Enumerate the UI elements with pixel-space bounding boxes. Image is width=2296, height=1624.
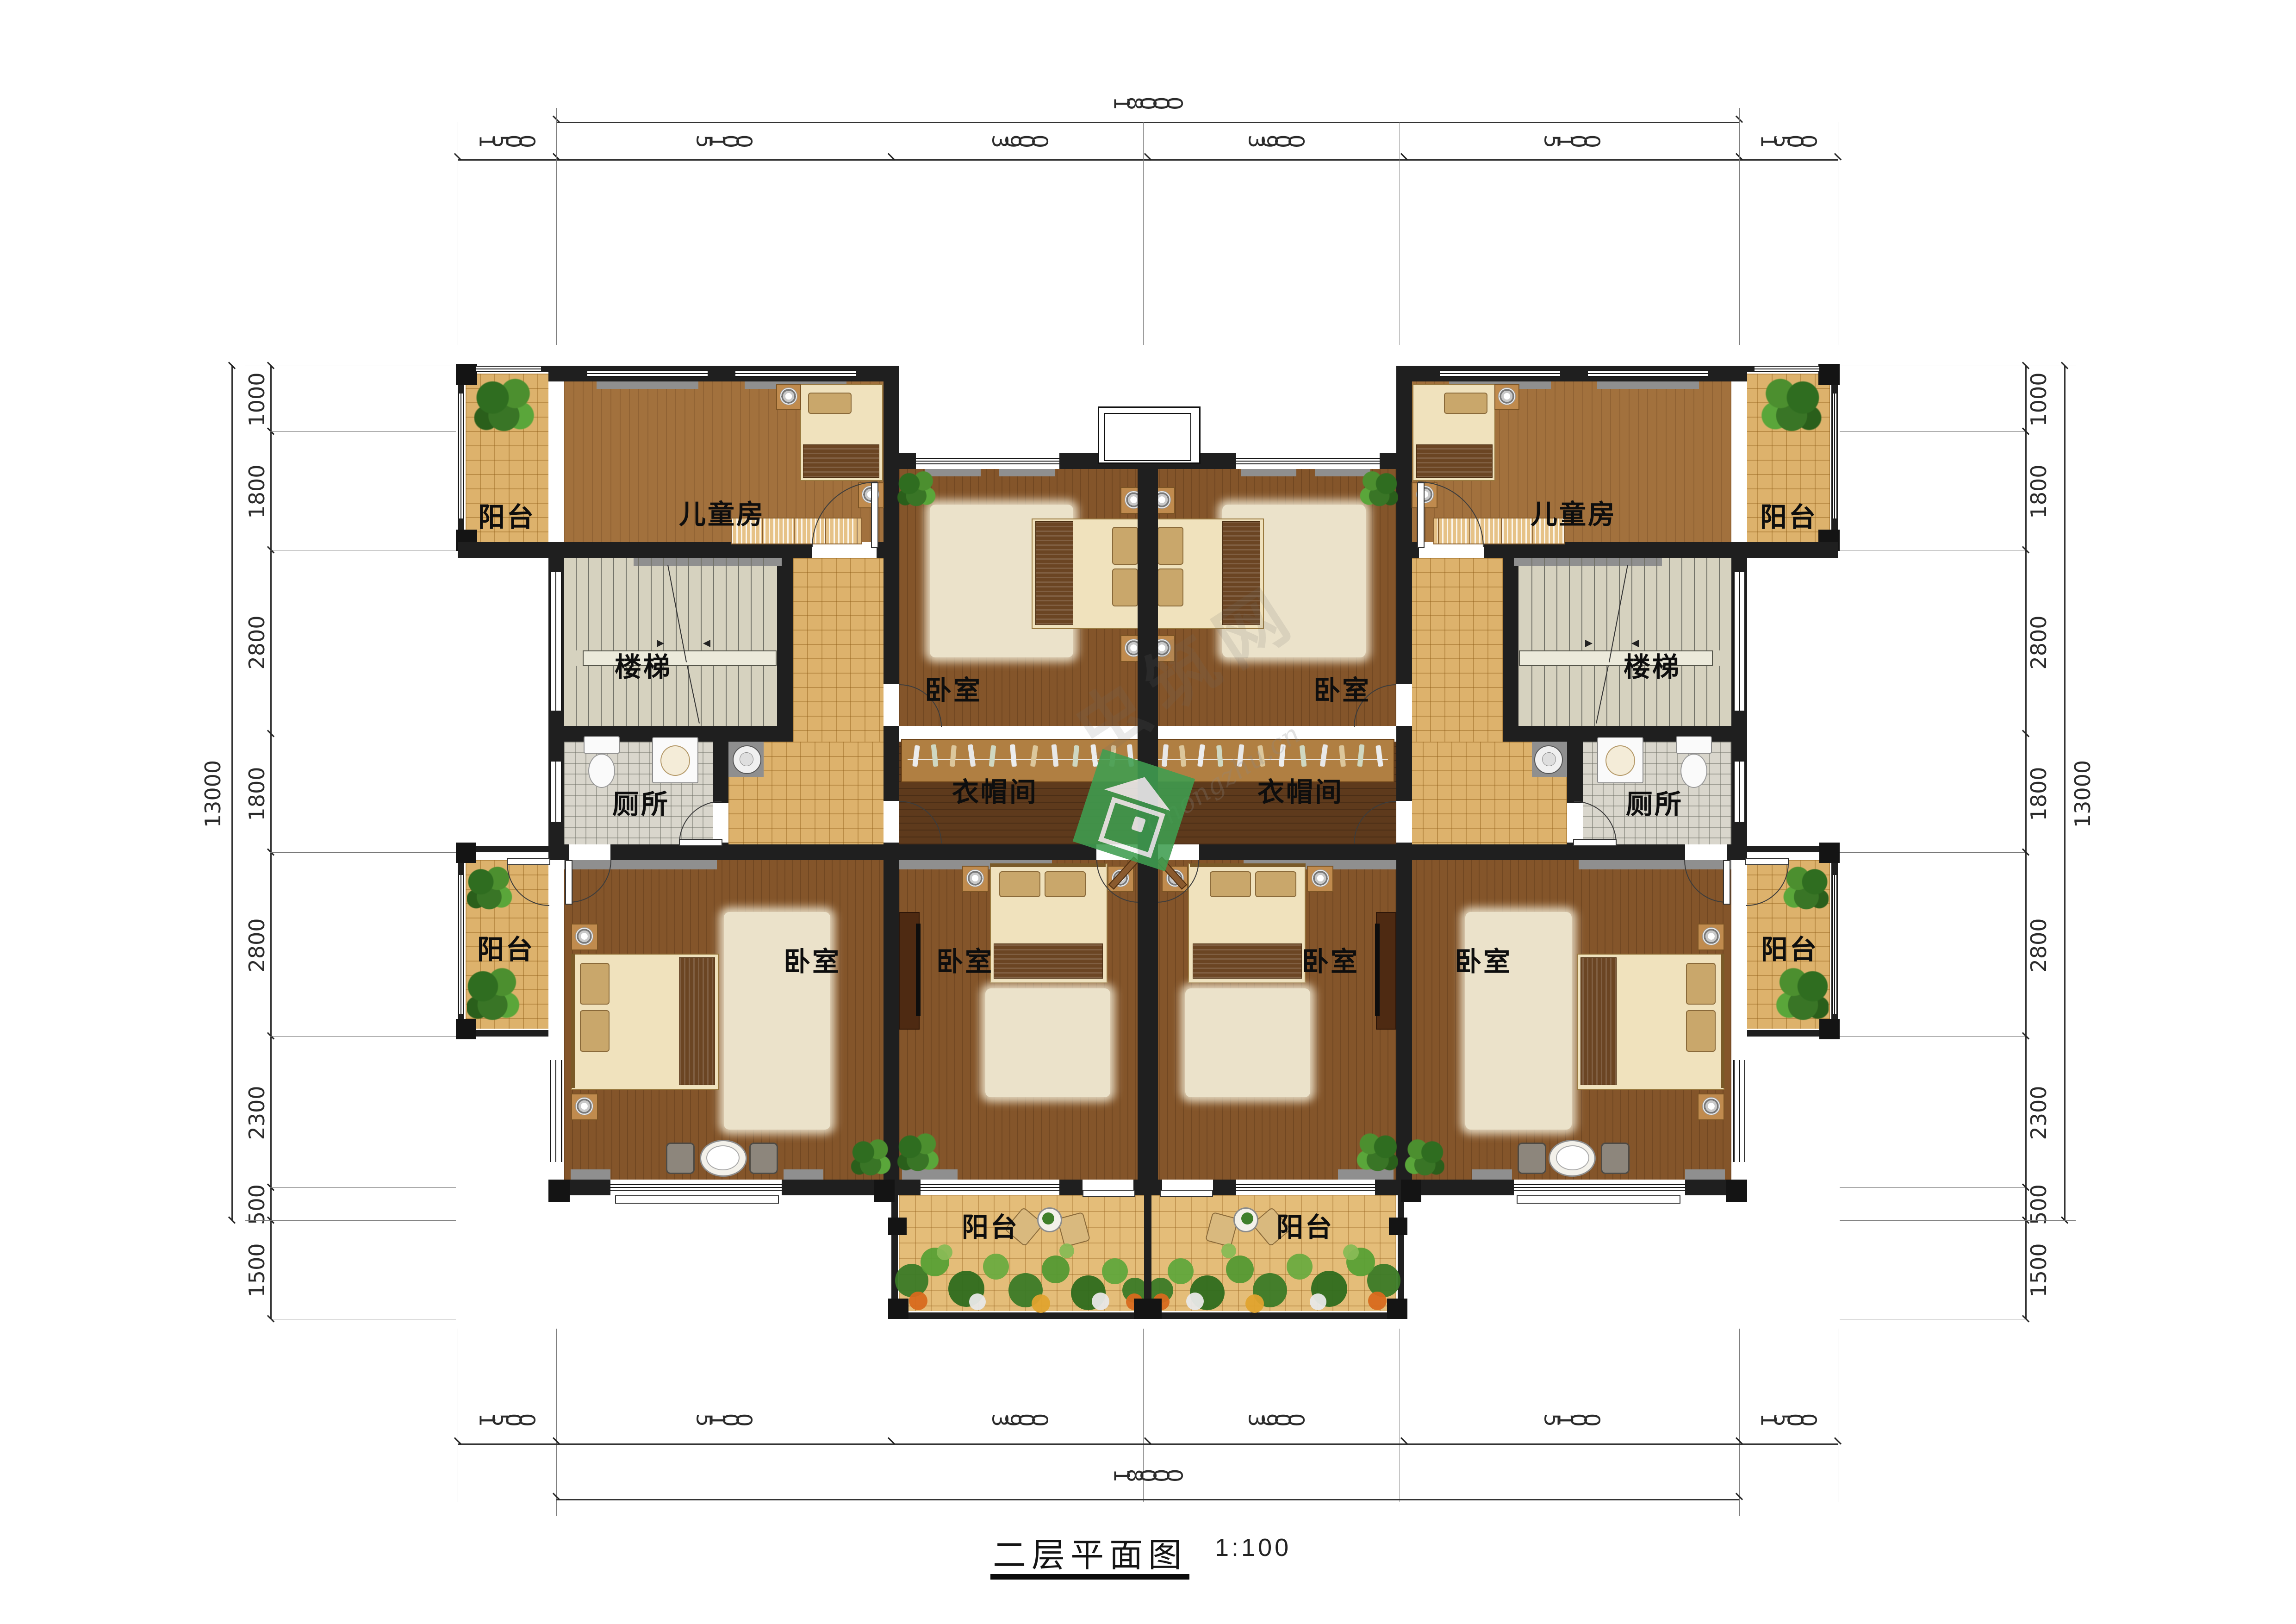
room-label-cloakroom-left: 衣帽间 (935, 770, 1055, 809)
window-sill (1597, 381, 1699, 389)
wall (1059, 1180, 1083, 1195)
wall (1213, 1180, 1236, 1195)
pillow (1112, 568, 1138, 606)
window (550, 572, 562, 711)
room-label-bedroom-top-left: 卧室 (893, 668, 1014, 707)
dim-left-seg-6: 2300 (244, 1067, 269, 1159)
dim-top-seg-2: 5100 (687, 129, 761, 154)
wall (610, 844, 1096, 860)
pillow (1112, 527, 1138, 565)
ext-line (1739, 108, 1740, 345)
garden-bush (1102, 1258, 1128, 1284)
window (550, 1060, 562, 1162)
dim-line (231, 366, 233, 1220)
wall (1727, 844, 1747, 860)
dim-left-seg-1: 1000 (244, 353, 269, 446)
lamp (780, 387, 797, 405)
room-label-cloakroom-right: 衣帽间 (1240, 770, 1361, 809)
dim-bottom-seg-3: 3900 (983, 1407, 1057, 1432)
window (1440, 370, 1560, 377)
wall (1380, 453, 1412, 469)
drawing-title: 二层平面图 (993, 1528, 1187, 1576)
table-top (1556, 1145, 1589, 1170)
plant (467, 965, 520, 1025)
wall (884, 366, 899, 684)
door-leaf (1723, 860, 1730, 905)
window-bay (1517, 1195, 1680, 1204)
garden-flower (1310, 1293, 1326, 1310)
plant (1775, 965, 1829, 1025)
ext-line (556, 108, 557, 345)
bay-window-inner (1104, 413, 1191, 461)
title-underline (990, 1574, 1189, 1580)
door-threshold (1160, 1190, 1213, 1197)
sink (1605, 745, 1635, 776)
dim-line (270, 366, 272, 1319)
wall (1396, 726, 1412, 801)
window (1755, 366, 1819, 372)
dim-bottom-seg-2: 5100 (687, 1407, 761, 1432)
wall (1567, 734, 1583, 803)
room-label-stairs-left: 楼梯 (583, 645, 703, 684)
garden-bush (1287, 1254, 1313, 1280)
dim-bottom-seg-6: 1500 (1751, 1407, 1825, 1432)
window-sill (571, 1169, 610, 1180)
garden-bush (983, 1254, 1009, 1280)
blanket (803, 444, 879, 478)
dim-bottom-overall: 18000 (1092, 1463, 1203, 1488)
window (735, 370, 856, 377)
wall (1375, 1180, 1404, 1195)
ext-line (458, 122, 458, 345)
room-label-balcony-top-left: 阳台 (447, 495, 567, 534)
door-leaf (679, 839, 722, 846)
window (1733, 762, 1745, 822)
door-leaf (565, 860, 572, 905)
dim-left-overall: 13000 (200, 748, 225, 840)
dim-top-seg-5: 5100 (1535, 129, 1609, 154)
pillow (1045, 871, 1086, 897)
lamp (575, 927, 593, 945)
room-label-bedroom-bottom-right: 卧室 (1423, 940, 1543, 979)
room-label-bedroom-bottom-center-right: 卧室 (1270, 940, 1391, 979)
window (916, 458, 1059, 464)
door-leaf (1573, 839, 1617, 846)
garden-flower (1032, 1294, 1050, 1313)
window-sill (1241, 469, 1296, 476)
window (1588, 370, 1708, 377)
corner-post (874, 1180, 895, 1202)
pillow (1157, 568, 1183, 606)
table-top (706, 1145, 740, 1170)
dim-right-overall: 13000 (2070, 748, 2095, 840)
window-bay (615, 1195, 779, 1204)
headboard (1190, 863, 1306, 867)
dim-bottom-seg-4: 3900 (1239, 1407, 1313, 1432)
hallway-floor (793, 558, 884, 742)
dim-line (556, 122, 1739, 123)
corner-post (888, 1218, 907, 1235)
room-label-children-right: 儿童房 (1513, 493, 1634, 531)
window-sill (999, 469, 1055, 476)
pillow (1444, 393, 1487, 414)
lamp (966, 869, 984, 887)
plant (474, 377, 536, 435)
window-sill (597, 381, 698, 389)
garden-flower (969, 1293, 986, 1310)
dim-top-overall: 18000 (1092, 91, 1203, 116)
dim-right-seg-5: 2800 (2026, 899, 2051, 992)
window (550, 762, 562, 822)
window (1733, 572, 1745, 711)
dim-left-seg-5: 2800 (244, 899, 269, 992)
wall (1148, 1312, 1404, 1319)
window-sill (784, 1169, 823, 1180)
room-label-bedroom-bottom-left: 卧室 (752, 940, 872, 979)
dim-right-seg-6: 2300 (2026, 1067, 2051, 1159)
ext-line (1143, 122, 1144, 345)
pillow (580, 963, 610, 1005)
room-label-balcony-top-right: 阳台 (1729, 495, 1849, 534)
dim-left-seg-3: 2800 (244, 596, 269, 689)
garden-bush (1343, 1244, 1359, 1260)
garden-bush (1059, 1243, 1074, 1258)
dim-bottom-seg-5: 5100 (1535, 1407, 1609, 1432)
corner-post (888, 1299, 908, 1319)
corner-post (1389, 1218, 1407, 1235)
garden-bush (937, 1244, 952, 1260)
window (1514, 1184, 1685, 1191)
blanket (1416, 444, 1493, 478)
rug (985, 988, 1110, 1097)
plant (897, 1132, 940, 1174)
toilet-tank (1676, 736, 1712, 754)
door-leaf (1745, 858, 1789, 865)
pillow (999, 871, 1040, 897)
dim-top-seg-1: 1500 (470, 129, 544, 154)
room-label-balcony-mid-left: 阳台 (446, 928, 566, 967)
wall (1484, 542, 1838, 558)
pillow (1686, 1010, 1716, 1052)
headboard (1721, 954, 1724, 1088)
ext-line (887, 122, 887, 345)
dim-right-seg-3: 2800 (2026, 596, 2051, 689)
plant (1782, 865, 1829, 913)
wall (891, 1180, 921, 1195)
dim-top-seg-4: 3900 (1239, 129, 1313, 154)
hallway-floor (1412, 558, 1503, 742)
wall (1199, 844, 1685, 860)
chair (666, 1143, 695, 1174)
blanket (679, 957, 715, 1085)
dim-right-seg-4: 1800 (2026, 748, 2051, 840)
room-label-toilet-right: 厕所 (1594, 782, 1715, 821)
sink (660, 745, 690, 776)
headboard (990, 863, 1106, 867)
room-label-bedroom-bottom-center-left: 卧室 (905, 940, 1025, 979)
window (921, 1184, 1059, 1191)
dim-left-seg-4: 1800 (244, 748, 269, 840)
chair (1601, 1143, 1630, 1174)
headboard (571, 954, 575, 1088)
ext-line (1838, 122, 1838, 345)
door-leaf (1417, 482, 1425, 548)
dim-right-seg-2: 1800 (2026, 445, 2051, 538)
plant (467, 865, 513, 913)
garden-bush (1226, 1255, 1254, 1283)
door-threshold (1083, 1190, 1135, 1197)
window (476, 366, 541, 372)
dim-left-seg-8: 1500 (244, 1224, 269, 1317)
lamp (1498, 387, 1516, 405)
window-sill (1685, 1169, 1725, 1180)
dim-top-seg-6: 1500 (1751, 129, 1825, 154)
pillow (1210, 871, 1251, 897)
blanket (1580, 957, 1617, 1085)
door-leaf (871, 482, 878, 548)
wall (777, 550, 793, 742)
corner-post (1819, 843, 1840, 863)
window (1236, 1184, 1375, 1191)
wall (458, 542, 812, 558)
window (1236, 458, 1380, 464)
dim-line (458, 159, 1838, 161)
pillow (580, 1010, 610, 1052)
corner-post (1387, 1299, 1407, 1319)
wall (548, 844, 569, 860)
corner-post (1401, 1180, 1421, 1202)
garden-bush (1168, 1258, 1194, 1284)
pillow (1686, 963, 1716, 1005)
plant (1356, 1132, 1398, 1174)
lamp (1312, 869, 1329, 887)
chair (1518, 1143, 1546, 1174)
corner-post (548, 1180, 570, 1202)
dim-right-seg-8: 1500 (2026, 1224, 2051, 1317)
wall (713, 734, 728, 803)
garden-flower (1368, 1292, 1387, 1310)
pillow (1255, 871, 1296, 897)
garden-flower (1092, 1293, 1109, 1310)
plant (897, 470, 937, 509)
garden-bush (1042, 1255, 1070, 1283)
stair-arrowhead (703, 640, 710, 647)
dim-bottom-seg-1: 1500 (470, 1407, 544, 1432)
plant (851, 1138, 892, 1179)
lamp (575, 1097, 593, 1115)
room-label-children-left: 儿童房 (662, 493, 782, 531)
window (610, 1184, 782, 1191)
room-label-stairs-right: 楼梯 (1592, 645, 1712, 684)
corner-post (456, 843, 476, 863)
dim-left-seg-2: 1800 (244, 445, 269, 538)
pillow (808, 393, 852, 414)
window-sill (1472, 1169, 1512, 1180)
stair-arrowhead (1585, 640, 1593, 647)
pillow (1157, 527, 1183, 565)
wall (1503, 550, 1518, 742)
plant (1404, 1138, 1444, 1179)
dim-top-seg-3: 3900 (983, 129, 1057, 154)
room-label-toilet-left: 厕所 (581, 782, 701, 821)
chair (749, 1143, 778, 1174)
garden-flower (909, 1292, 927, 1310)
dim-right-seg-1: 1000 (2026, 353, 2051, 446)
floorplan-sheet: 18000 1500 5100 3900 3900 5100 1500 1300… (0, 0, 2296, 1624)
plant (1359, 470, 1398, 509)
window (587, 370, 708, 377)
corner-post (1726, 1180, 1747, 1202)
room-label-balcony-bottom-left: 阳台 (930, 1206, 1051, 1244)
washbasin-inner (740, 752, 753, 766)
wall (891, 1312, 1148, 1319)
garden-bush (1221, 1243, 1236, 1258)
drawing-scale: 1:100 (1215, 1533, 1291, 1562)
room-label-bedroom-top-right: 卧室 (1282, 668, 1402, 707)
lamp (1702, 927, 1720, 945)
wall (884, 453, 916, 469)
room-label-balcony-bottom-right: 阳台 (1245, 1206, 1365, 1244)
room-label-balcony-mid-right: 阳台 (1730, 928, 1850, 967)
wall (884, 726, 899, 801)
wall (1396, 366, 1412, 684)
lamp (1702, 1097, 1720, 1115)
washbasin-inner (1542, 752, 1556, 766)
garden-flower (1245, 1294, 1264, 1313)
corner-post (1134, 1299, 1162, 1319)
door-leaf (507, 858, 550, 865)
window (1733, 1060, 1745, 1162)
dim-line (2064, 366, 2066, 1220)
rug (1185, 988, 1310, 1097)
plant (1759, 377, 1822, 435)
garden-flower (1186, 1293, 1204, 1310)
blanket (1035, 521, 1073, 625)
ext-line (1400, 122, 1400, 345)
toilet-tank (584, 736, 620, 754)
